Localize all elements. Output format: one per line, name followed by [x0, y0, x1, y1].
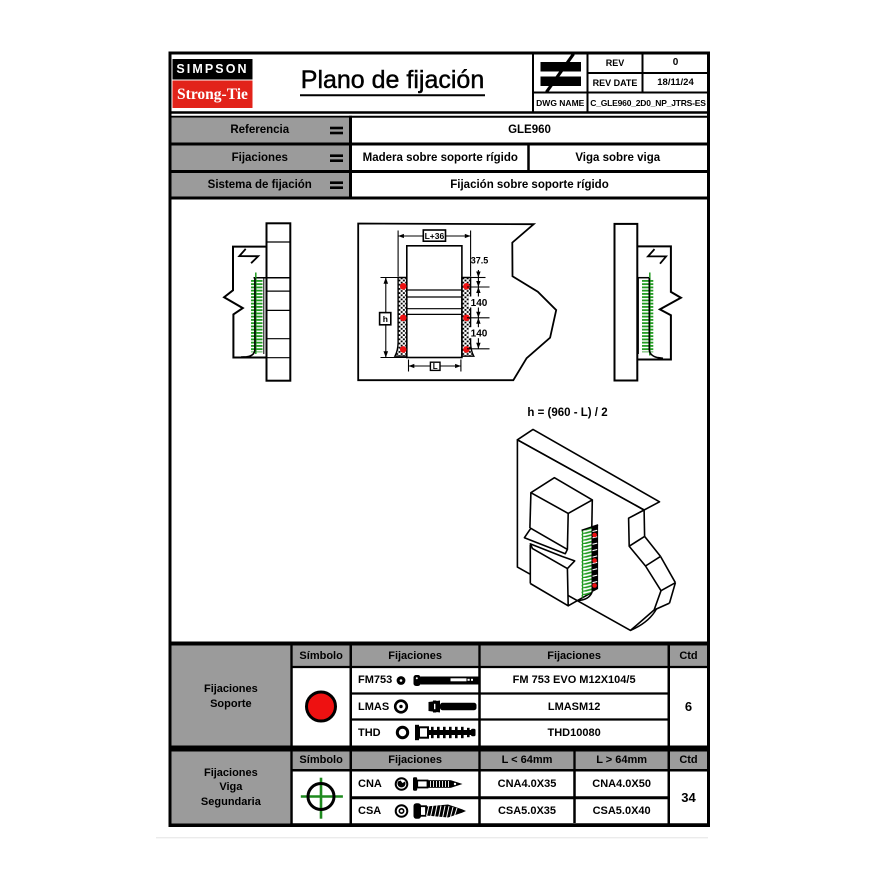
svg-text:37.5: 37.5 — [471, 256, 489, 266]
svg-text:L+36: L+36 — [425, 231, 445, 241]
svg-text:L: L — [433, 362, 438, 371]
svg-text:140: 140 — [471, 329, 488, 340]
svg-text:h: h — [383, 314, 388, 324]
svg-text:140: 140 — [471, 298, 488, 309]
